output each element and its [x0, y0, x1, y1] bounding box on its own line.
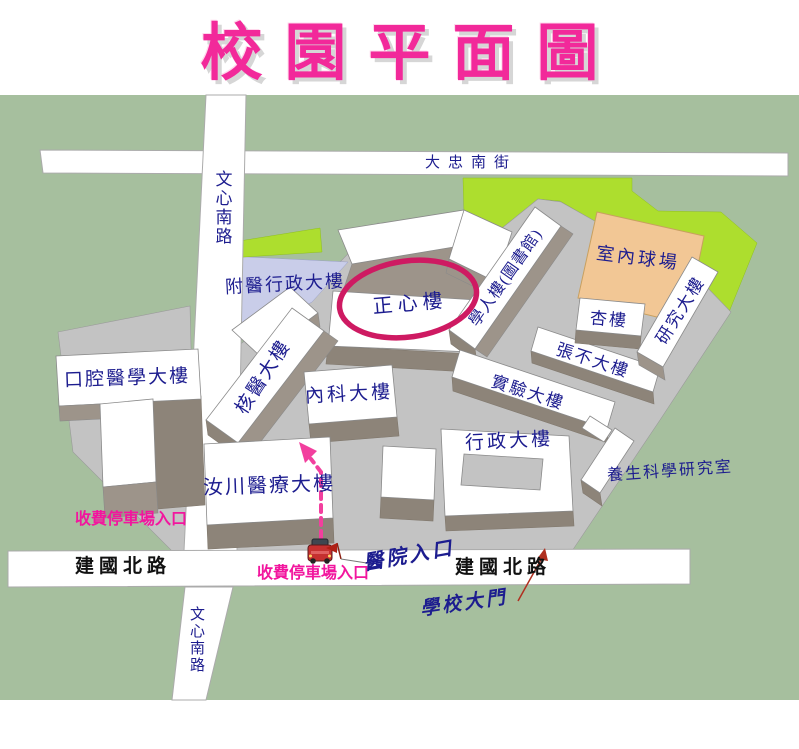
road-dazhong: [40, 150, 788, 176]
label-parking-entrance-bottom: 收費停車場入口: [257, 563, 369, 582]
small-box-top: [381, 446, 436, 500]
admin-courtyard: [461, 454, 543, 490]
campus-map-page: 校園平面圖: [0, 0, 799, 749]
road-label-wenxin-north: 文心南路: [213, 170, 233, 246]
road-label-jianguo-left: 建國北路: [75, 554, 171, 577]
building-small-box: [380, 446, 436, 521]
label-admin: 行政大樓: [465, 428, 554, 455]
car-icon: [308, 539, 332, 564]
road-label-dazhong: 大忠南街: [425, 154, 517, 171]
oral-sliver: [59, 404, 101, 421]
road-label-wenxin-south: 文心南路: [188, 606, 205, 674]
road-label-jianguo-right: 建國北路: [455, 555, 551, 578]
label-xing: 杏樓: [589, 308, 629, 330]
label-oral: 口腔醫學大樓: [64, 365, 191, 391]
label-neike: 內科大樓: [305, 381, 394, 408]
oral-wing: [100, 399, 156, 487]
label-parking-entrance-left: 收費停車場入口: [75, 509, 187, 528]
label-ruchuan: 汝川醫療大樓: [203, 472, 336, 500]
small-box-base: [380, 497, 434, 521]
oral-dark-side: [153, 396, 205, 509]
campus-map: 大忠南街 文心南路 文心南路 建國北路 建國北路 附醫行政大樓 正心樓 學人樓(…: [0, 0, 799, 749]
